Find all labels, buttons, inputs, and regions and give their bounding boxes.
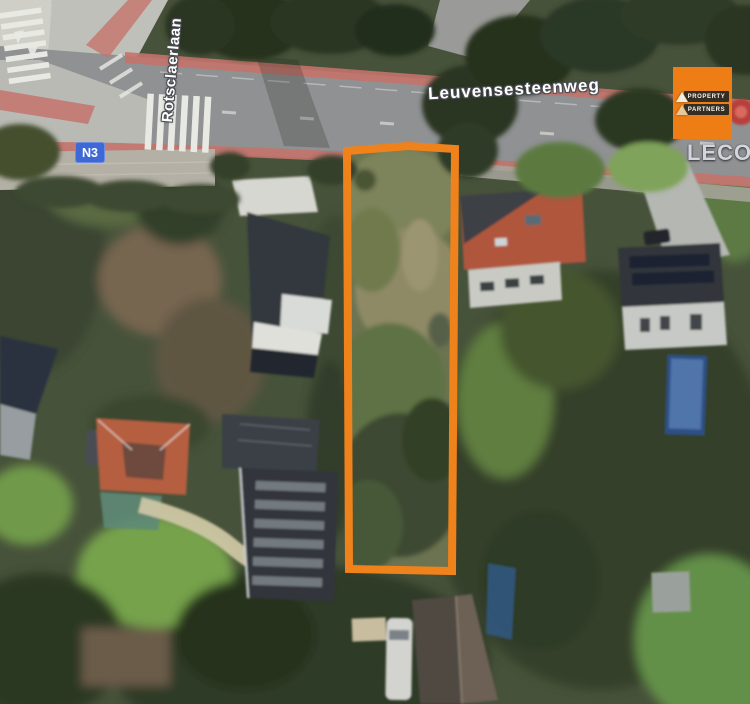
logo-line2: PARTNERS — [684, 104, 729, 115]
watermark-partial-text: LECO — [687, 140, 750, 166]
shed — [651, 571, 690, 612]
parcel-interior — [333, 148, 465, 570]
logo-row: PROPERTY — [676, 91, 732, 102]
blue-tarp — [486, 563, 516, 640]
logo-row: PARTNERS — [676, 104, 732, 115]
agency-logo: PROPERTY PARTNERS — [673, 67, 732, 139]
house-roof — [412, 596, 462, 704]
shed — [352, 617, 387, 641]
route-shield-n3: N3 — [75, 142, 105, 163]
logo-triangle-icon — [676, 105, 688, 115]
logo-line1: PROPERTY — [684, 91, 729, 102]
driveway — [232, 176, 318, 216]
satellite-map[interactable]: Leuvensesteenweg Rotsclaerlaan N3 PROPER… — [0, 0, 750, 704]
logo-triangle-icon — [676, 92, 688, 102]
satellite-imagery — [0, 0, 750, 704]
